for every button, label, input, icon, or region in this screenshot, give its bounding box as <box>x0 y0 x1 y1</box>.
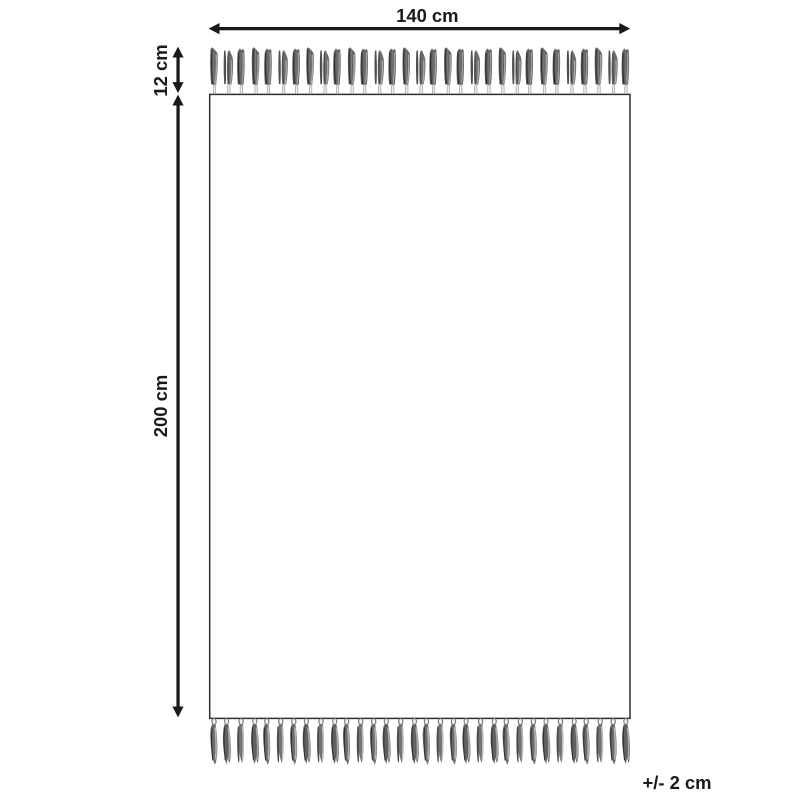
svg-text:12 cm: 12 cm <box>150 44 171 96</box>
svg-text:+/- 2 cm: +/- 2 cm <box>643 772 712 793</box>
svg-text:200 cm: 200 cm <box>150 375 171 437</box>
svg-text:140 cm: 140 cm <box>396 5 458 26</box>
